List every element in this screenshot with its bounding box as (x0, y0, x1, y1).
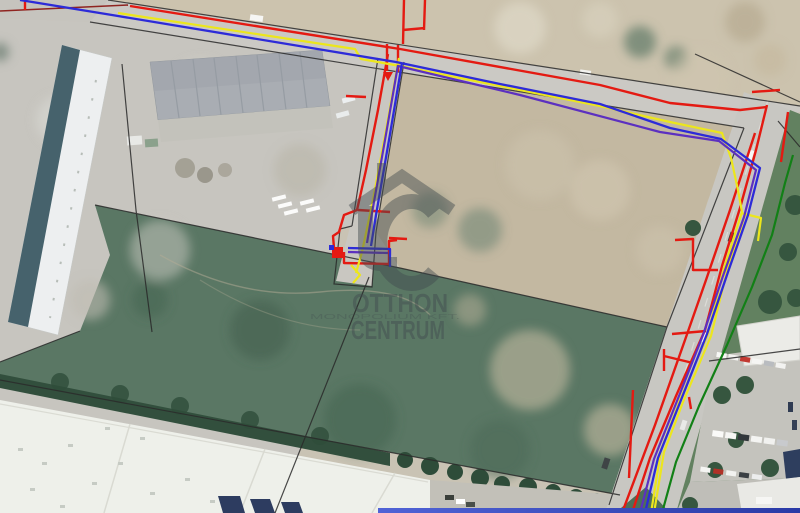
map-viewport[interactable]: OTTHON MONOPOLIUM KFT. CENTRUM (0, 0, 800, 513)
warehouse-sawtooth (150, 50, 333, 142)
bottom-accent-bar (378, 508, 800, 513)
building-navy-east (783, 449, 800, 479)
aerial-map-image: OTTHON MONOPOLIUM KFT. CENTRUM (0, 0, 800, 513)
watermark-line-2: CENTRUM (351, 315, 445, 345)
